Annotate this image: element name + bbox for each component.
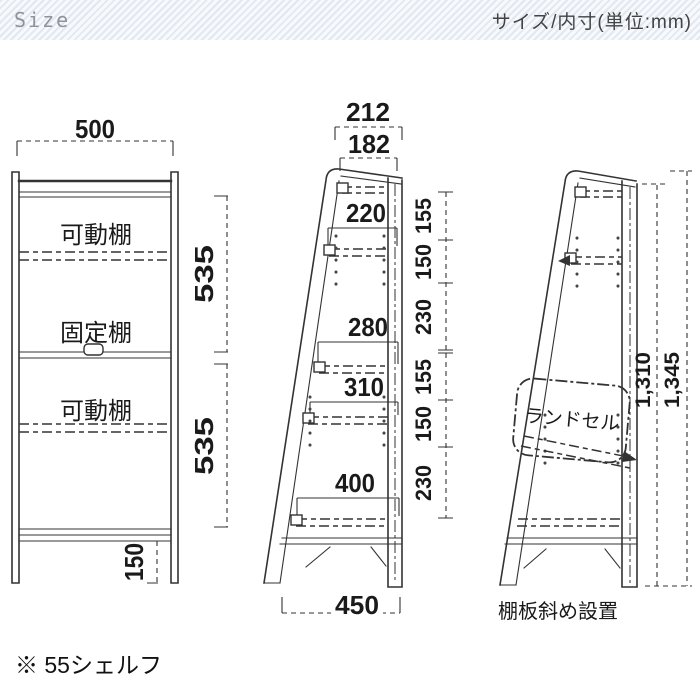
side-shelf-1-line [329, 249, 388, 256]
dim-155-2: 155 [411, 359, 436, 395]
tilt-top-shelf-bracket [575, 187, 586, 197]
dim-400: 400 [335, 468, 375, 498]
label-movable-shelf-top: 可動棚 [60, 222, 132, 249]
shelf-pin-holes-lower [310, 397, 384, 446]
side-bottom-width-dimension: 450 [282, 590, 400, 620]
dim-535-upper: 535 [189, 245, 219, 303]
tilt-pin-holes-upper [577, 238, 618, 288]
side-bottom-shelf-line [296, 519, 388, 526]
side-depth-2-dimension: 280 [318, 312, 398, 364]
dim-310: 310 [344, 372, 384, 402]
side-view: 212 182 220 [264, 97, 453, 620]
tilt-view: ランドセル 1,310 1,345 棚板斜め設置 [498, 171, 692, 623]
tilt-bottom-board [505, 538, 637, 544]
shelf-arrow-left [558, 255, 570, 266]
dim-280: 280 [348, 312, 388, 342]
dimension-drawing: 500 可動棚 固定棚 可動棚 [0, 0, 700, 700]
randoseru-outline: ランドセル [512, 377, 631, 464]
tilt-shelf-1-line [571, 257, 622, 264]
dim-1345: 1,345 [661, 352, 684, 408]
side-shelf-1-bracket [324, 245, 335, 255]
dim-150-2: 150 [411, 406, 436, 442]
label-movable-shelf-bottom: 可動棚 [60, 398, 132, 425]
front-top-board [19, 181, 171, 197]
front-lower-section-dimension: 535 [189, 364, 228, 527]
dim-150: 150 [119, 543, 149, 581]
dim-182: 182 [348, 129, 390, 159]
dim-155-1: 155 [411, 198, 436, 234]
front-leg-dimension: 150 [119, 541, 158, 583]
label-fixed-shelf: 固定棚 [60, 320, 132, 347]
front-view: 500 可動棚 固定棚 可動棚 [12, 114, 228, 583]
tilt-bottom-shelf-line [517, 519, 622, 526]
height-dimensions: 1,310 1,345 [632, 171, 692, 586]
side-top-inner-dimension: 182 [340, 129, 397, 171]
side-top-shelf-bracket [337, 183, 348, 193]
tilt-leg-braces [524, 549, 620, 568]
dim-450: 450 [335, 590, 379, 620]
side-shelf-3-bracket [303, 413, 314, 423]
side-fixed-shelf-bracket [314, 362, 325, 372]
side-bottom-shelf-bracket [291, 515, 302, 525]
dim-220: 220 [346, 198, 386, 228]
side-depth-1-dimension: 220 [328, 198, 397, 246]
dim-230-1: 230 [411, 299, 436, 335]
fixed-shelf-knob [84, 344, 103, 355]
side-leg-braces [306, 547, 386, 567]
side-shelf-3-line [308, 417, 388, 424]
dim-535-lower: 535 [189, 417, 219, 475]
dim-500: 500 [75, 114, 115, 144]
side-bottom-board [280, 538, 402, 544]
randoseru-label: ランドセル [524, 406, 620, 435]
dim-230-2: 230 [411, 465, 436, 501]
shelf-pin-holes-upper [336, 236, 384, 286]
front-movable-shelf-top-line [19, 252, 171, 260]
dim-150-1: 150 [411, 244, 436, 280]
tilt-caption: 棚板斜め設置 [498, 600, 618, 623]
front-upper-section-dimension: 535 [189, 196, 228, 352]
side-top-shelf-line [342, 187, 388, 193]
front-movable-shelf-bottom-line [19, 424, 171, 432]
footnote: ※ 55シェルフ [15, 652, 162, 678]
dim-212: 212 [346, 97, 390, 127]
spec-sheet: Size サイズ/内寸(単位:mm) 500 可動棚 [0, 0, 700, 700]
tilt-panel-outline [500, 171, 637, 587]
front-width-dimension: 500 [17, 114, 173, 156]
dim-1310: 1,310 [632, 352, 655, 408]
side-depth-4-dimension: 400 [297, 468, 399, 516]
front-bottom-board [19, 529, 171, 541]
side-right-dimensions: 155 150 230 155 150 230 [411, 192, 453, 518]
